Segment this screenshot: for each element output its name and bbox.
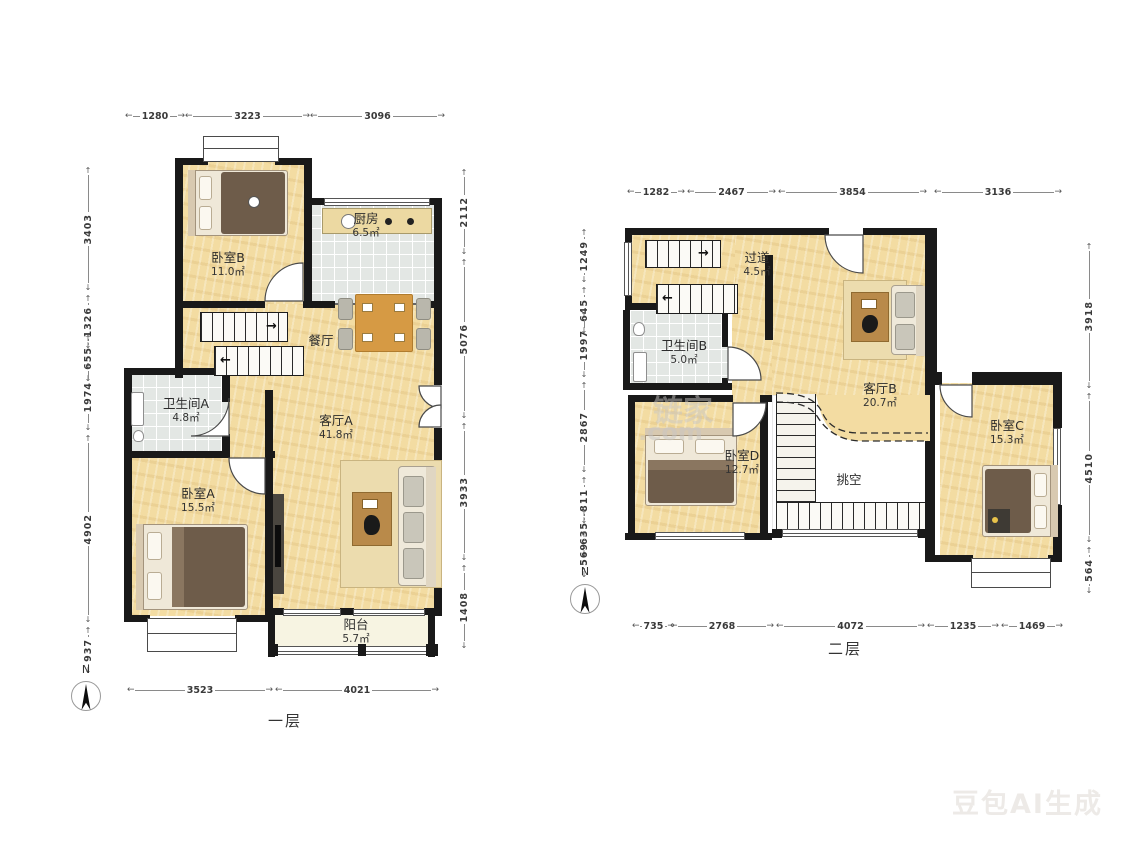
- bed-bedroom-b: [188, 170, 288, 236]
- dim-value: 1974: [83, 380, 94, 414]
- dimension: 3854: [778, 186, 927, 198]
- kitchen-window: [324, 198, 430, 206]
- coffee-table-living-a: [352, 492, 392, 546]
- dimension: 635: [578, 509, 590, 528]
- dimension: 1280: [125, 110, 185, 122]
- stair-arrow-icon: [266, 320, 277, 333]
- living-balcony-window-right: [353, 609, 425, 616]
- dimension: 5076: [458, 258, 470, 420]
- wall: [772, 529, 782, 538]
- dimension: 4021: [275, 684, 439, 696]
- dimension: 1282: [627, 186, 685, 198]
- wall: [623, 310, 630, 390]
- bed-headboard: [188, 170, 196, 236]
- wall: [625, 228, 632, 242]
- bed-pillow: [1034, 505, 1047, 529]
- sofa-cushion: [895, 324, 915, 350]
- bed-pillow: [147, 532, 162, 560]
- wall: [434, 198, 442, 390]
- void-window: [782, 529, 918, 537]
- wall: [972, 372, 1062, 385]
- coffee-table-living-b: [851, 292, 889, 342]
- dimension: 4072: [776, 620, 925, 632]
- wall: [722, 378, 728, 390]
- dim-value: 1280: [140, 111, 170, 122]
- wall: [175, 158, 183, 378]
- room-area: 4.5㎡: [712, 266, 802, 280]
- nightstand: [988, 509, 1010, 533]
- dim-value: 2112: [459, 195, 470, 229]
- room-label-living-b: 客厅B 20.7㎡: [835, 381, 925, 411]
- wall: [175, 301, 265, 308]
- wall: [222, 434, 230, 458]
- wall: [124, 451, 229, 458]
- room-name: 卫生间B: [661, 338, 707, 353]
- bathroom-b-toilet: [633, 322, 645, 336]
- bay-window-bedroom-c: [971, 558, 1051, 588]
- dimension: 3096: [310, 110, 445, 122]
- dimension: 645: [578, 286, 590, 309]
- room-label-void: 挑空: [804, 472, 894, 488]
- dim-value: 569: [579, 541, 590, 568]
- room-name: 过道: [744, 250, 769, 265]
- dimension: 1974: [82, 362, 94, 432]
- room-area: 41.8㎡: [291, 429, 381, 443]
- dimension: 3403: [82, 166, 94, 292]
- dim-value: 937: [83, 637, 94, 664]
- bay-window-bedroom-b: [203, 136, 279, 162]
- bed-headboard: [1050, 465, 1058, 537]
- dining-chair: [416, 298, 431, 320]
- placemat: [394, 333, 405, 342]
- room-name: 餐厅: [308, 333, 333, 348]
- dimension: 4902: [82, 434, 94, 624]
- placemat: [394, 303, 405, 312]
- dimension: 2867: [578, 381, 590, 474]
- dim-value: 3403: [83, 212, 94, 246]
- room-label-hallway: 过道 4.5㎡: [712, 250, 802, 280]
- room-label-bedroom-d: 卧室D 12.7㎡: [697, 448, 787, 478]
- bed-pillow: [147, 572, 162, 600]
- room-name: 卧室D: [725, 448, 760, 463]
- dimension: 1469: [1001, 620, 1063, 632]
- dimension: 1235: [927, 620, 999, 632]
- room-label-dining: 餐厅: [276, 333, 366, 349]
- sofa-cushion: [403, 548, 424, 579]
- balcony-window-post: [268, 644, 278, 656]
- dimension: 655: [82, 334, 94, 360]
- room-name: 卧室B: [211, 250, 245, 265]
- north-label: N: [71, 663, 101, 676]
- watermark-generator: 豆包AI生成: [952, 782, 1103, 821]
- room-area: 11.0㎡: [183, 266, 273, 280]
- living-balcony-window-left: [283, 609, 341, 616]
- bed-pillow: [199, 206, 212, 230]
- wall: [625, 228, 829, 235]
- hallway-window: [624, 242, 632, 296]
- room-label-kitchen: 厨房 6.5㎡: [321, 211, 411, 241]
- dimension: 937: [82, 626, 94, 654]
- stair-arrow-icon: [698, 247, 709, 260]
- wall: [925, 228, 937, 378]
- floor1-caption: 一层: [235, 710, 335, 731]
- dim-value: 1469: [1017, 621, 1047, 632]
- wall: [1053, 372, 1062, 428]
- dim-value: 3136: [983, 187, 1013, 198]
- room-name: 厨房: [353, 211, 378, 226]
- dim-value: 2867: [579, 410, 590, 444]
- room-area: 12.7㎡: [697, 464, 787, 478]
- bed-pillow: [199, 176, 212, 200]
- placemat: [362, 303, 373, 312]
- room-area: 5.7㎡: [311, 633, 401, 647]
- bay-window-bedroom-a: [147, 618, 237, 652]
- entry-recess: [433, 385, 445, 428]
- sofa-cushion: [895, 292, 915, 318]
- dim-value: 3523: [185, 685, 215, 696]
- dimension: 4510: [1083, 392, 1095, 544]
- room-area: 4.8㎡: [141, 412, 231, 426]
- compass-needle-icon: [578, 587, 593, 613]
- dim-value: 735: [642, 621, 666, 632]
- room-area: 20.7㎡: [835, 397, 925, 411]
- room-name: 挑空: [836, 472, 861, 487]
- bed-headboard: [136, 524, 144, 610]
- sofa-cushion: [403, 476, 424, 507]
- dimension: 1326: [82, 294, 94, 332]
- table-card: [861, 299, 877, 309]
- bed-bedroom-a: [136, 524, 248, 610]
- dim-value: 1249: [579, 239, 590, 273]
- dim-value: 1235: [948, 621, 978, 632]
- sofa-living-b: [891, 285, 925, 355]
- room-label-bathroom-a: 卫生间A 4.8㎡: [141, 396, 231, 426]
- floor2-stairs-upper: [645, 240, 721, 268]
- room-name: 客厅B: [863, 381, 897, 396]
- floor2-entry-gap: [829, 228, 863, 236]
- room-name: 卫生间A: [163, 396, 209, 411]
- room-area: 5.0㎡: [639, 354, 729, 368]
- room-label-bedroom-a: 卧室A 15.5㎡: [153, 486, 243, 516]
- dim-value: 1282: [641, 187, 671, 198]
- dim-value: 3918: [1084, 299, 1095, 333]
- wall: [925, 378, 935, 562]
- room-label-bedroom-b: 卧室B 11.0㎡: [183, 250, 273, 280]
- room-name: 卧室C: [990, 418, 1024, 433]
- tv-console: [273, 494, 284, 594]
- dim-value: 1997: [579, 328, 590, 362]
- dimension: 811: [578, 476, 590, 507]
- balcony-window-post: [426, 644, 438, 656]
- dim-value: 2768: [707, 621, 737, 632]
- dim-value: 3096: [362, 111, 392, 122]
- dim-value: 3854: [837, 187, 867, 198]
- stair-arrow-icon: [662, 292, 673, 305]
- tv-icon: [275, 525, 281, 567]
- floor2-caption: 二层: [795, 638, 895, 659]
- plant-icon: [364, 515, 380, 535]
- wall: [340, 608, 354, 615]
- dining-chair: [338, 298, 353, 320]
- dimension: 3933: [458, 422, 470, 562]
- room-label-balcony: 阳台 5.7㎡: [311, 617, 401, 647]
- sofa-cushion: [403, 512, 424, 543]
- dim-value: 1408: [459, 590, 470, 624]
- dim-value: 3223: [232, 111, 262, 122]
- dimension: 3523: [127, 684, 273, 696]
- compass-needle-icon: [79, 684, 94, 710]
- room-name: 阳台: [343, 617, 368, 632]
- table-card: [362, 499, 378, 509]
- sofa-living-a: [398, 466, 436, 586]
- dimension: 3223: [185, 110, 310, 122]
- wall: [304, 158, 312, 308]
- dimension: 1249: [578, 228, 590, 284]
- sofa-back: [426, 467, 436, 587]
- dimension: 2467: [687, 186, 776, 198]
- room-name: 客厅A: [319, 413, 353, 428]
- room-area: 15.3㎡: [962, 434, 1052, 448]
- dim-value: 3933: [459, 475, 470, 509]
- dimension: 735: [632, 620, 668, 632]
- bed-runner: [172, 527, 184, 607]
- room-area: 15.5㎡: [153, 502, 243, 516]
- wall: [265, 390, 273, 618]
- room-label-living-a: 客厅A 41.8㎡: [291, 413, 381, 443]
- bedroom-d-window: [655, 532, 745, 540]
- dimension: 564: [1083, 546, 1095, 590]
- dim-value: 5076: [459, 322, 470, 356]
- dimension: 1408: [458, 564, 470, 650]
- north-compass-icon: [71, 681, 101, 711]
- dimension: 2112: [458, 168, 470, 256]
- dim-value: 2467: [716, 187, 746, 198]
- north-label: N: [570, 565, 600, 578]
- dim-value: 564: [1084, 557, 1095, 584]
- bathroom-a-toilet: [133, 430, 144, 442]
- dimension: 3136: [934, 186, 1062, 198]
- plant-icon: [862, 315, 878, 333]
- wall: [628, 395, 635, 540]
- balcony-window: [270, 646, 436, 655]
- wall: [625, 296, 632, 310]
- sofa-back: [916, 286, 925, 356]
- dimension: 1997: [578, 311, 590, 379]
- dining-chair: [416, 328, 431, 350]
- room-area: 6.5㎡: [321, 227, 411, 241]
- dim-value: 4072: [835, 621, 865, 632]
- bed-bedroom-c: [982, 465, 1058, 537]
- lamp-icon: [992, 517, 998, 523]
- dimension: 569: [578, 530, 590, 553]
- watermark-brand-suffix: .com: [638, 418, 703, 446]
- bed-pillow: [1034, 473, 1047, 497]
- room-label-bathroom-b: 卫生间B 5.0㎡: [639, 338, 729, 368]
- floor1-corridor-floor: [228, 376, 268, 458]
- dim-value: 4021: [342, 685, 372, 696]
- dim-value: 4510: [1084, 451, 1095, 485]
- stair-arrow-icon: [220, 354, 231, 367]
- dim-value: 4902: [83, 512, 94, 546]
- north-compass-icon: [570, 584, 600, 614]
- dimension: 2768: [670, 620, 774, 632]
- room-label-bedroom-c: 卧室C 15.3㎡: [962, 418, 1052, 448]
- bed-lamp: [248, 196, 260, 208]
- room-name: 卧室A: [181, 486, 215, 501]
- dimension: 3918: [1083, 242, 1095, 390]
- floor-plan-canvas: 卧室B 11.0㎡ 厨房 6.5㎡ 餐厅 卫生间A 4.8㎡ 客厅A 41.8㎡…: [0, 0, 1125, 844]
